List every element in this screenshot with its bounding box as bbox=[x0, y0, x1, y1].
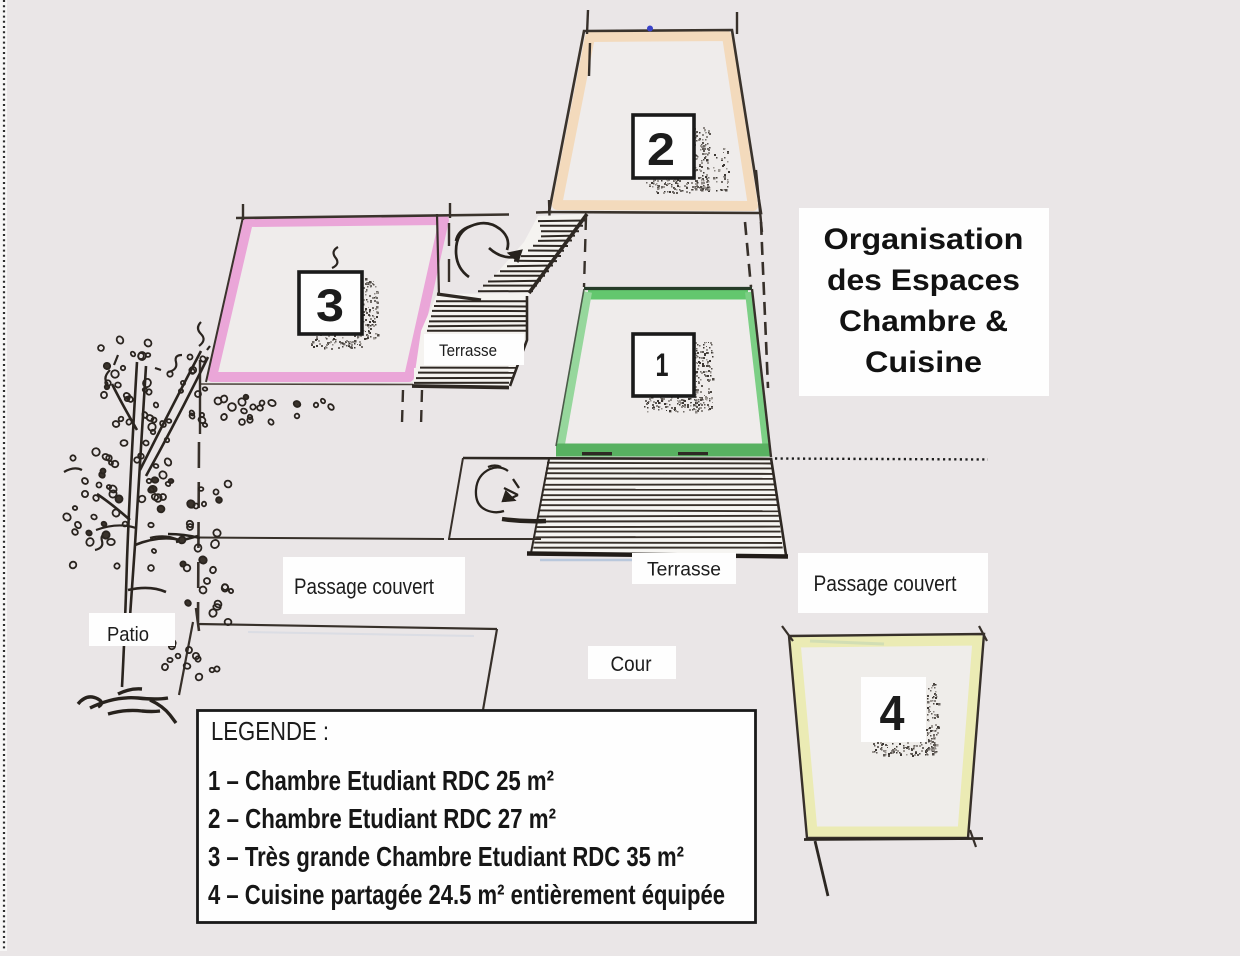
svg-text:2: 2 bbox=[647, 124, 675, 175]
svg-text:Terrasse: Terrasse bbox=[647, 559, 721, 580]
svg-text:Passage couvert: Passage couvert bbox=[294, 574, 434, 599]
svg-text:3 – Très grande Chambre Etudia: 3 – Très grande Chambre Etudiant RDC 35 … bbox=[208, 841, 684, 872]
svg-text:4 – Cuisine partagée 24.5 m² e: 4 – Cuisine partagée 24.5 m² entièrement… bbox=[208, 879, 725, 910]
svg-text:Chambre &: Chambre & bbox=[839, 305, 1008, 338]
svg-text:1 – Chambre Etudiant RDC 25 m²: 1 – Chambre Etudiant RDC 25 m² bbox=[208, 765, 554, 796]
svg-text:Organisation: Organisation bbox=[824, 223, 1024, 256]
svg-text:Cuisine: Cuisine bbox=[865, 346, 982, 379]
svg-text:4: 4 bbox=[880, 687, 905, 741]
svg-text:Cour: Cour bbox=[611, 653, 652, 676]
svg-text:des Espaces: des Espaces bbox=[827, 264, 1020, 297]
svg-text:LEGENDE :: LEGENDE : bbox=[211, 716, 329, 746]
svg-text:Terrasse: Terrasse bbox=[439, 341, 497, 360]
svg-text:2 – Chambre Etudiant RDC 27 m²: 2 – Chambre Etudiant RDC 27 m² bbox=[208, 803, 556, 834]
svg-text:1: 1 bbox=[656, 347, 669, 383]
svg-text:3: 3 bbox=[316, 280, 344, 331]
svg-text:Passage couvert: Passage couvert bbox=[814, 571, 957, 596]
svg-text:Patio: Patio bbox=[107, 624, 149, 646]
